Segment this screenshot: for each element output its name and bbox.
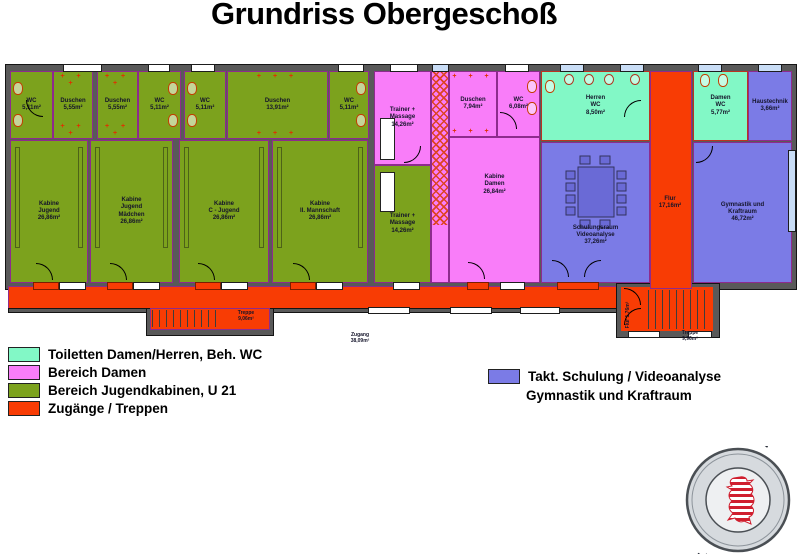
toilet-icon <box>527 80 537 93</box>
room-label: Gymnastik undKraftraum46,72m² <box>721 202 764 224</box>
room-label-treppe-links: Treppe9,06m² <box>226 310 266 322</box>
legend-label: Zugänge / Treppen <box>48 401 168 416</box>
toilet-icon <box>168 114 178 127</box>
urinal-icon <box>630 74 640 85</box>
urinal-icon <box>604 74 614 85</box>
legend-label: Takt. Schulung / Videoanalyse <box>528 369 721 384</box>
ksv-hessen-kassel-logo: KSV HESSEN KASSEL <box>684 446 792 554</box>
legend-label: Bereich Damen <box>48 365 146 380</box>
toilet-icon <box>700 74 710 87</box>
room-label-flur: Flur17,16m² <box>652 196 688 210</box>
page-title: Grundriss Obergeschoß <box>211 0 557 32</box>
window <box>63 64 102 72</box>
toilet-icon <box>187 114 197 127</box>
room-label-zugang: Zugang38,09m² <box>330 332 390 344</box>
window <box>390 64 418 72</box>
door-opening <box>107 282 133 290</box>
toilet-icon <box>187 82 197 95</box>
room-label: KabineC - Jugend26,86m² <box>209 201 240 223</box>
room-damen-wc: DamenWC5,77m² <box>693 71 748 141</box>
room-label: Trainer +Massage14,26m² <box>390 107 415 129</box>
room-label: WC5,11m² <box>196 98 215 112</box>
room-haustechnik: Haustechnik3,66m² <box>748 71 792 141</box>
toilet-icon <box>527 102 537 115</box>
room-label: Duschen5,55m² <box>60 98 85 112</box>
room-label: Duschen7,94m² <box>460 97 485 111</box>
toilet-icon <box>13 82 23 95</box>
room-kabine-jugend-maedchen: KabineJugendMädchen26,86m² <box>90 140 173 283</box>
window <box>133 282 160 290</box>
room-wc-4: WC5,11m² <box>329 71 369 139</box>
room-kabine-jugend: KabineJugend26,86m² <box>10 140 88 283</box>
room-duschen-3: Duschen13,91m² <box>227 71 328 139</box>
toilet-icon <box>545 80 555 93</box>
room-label: WC6,08m² <box>509 97 528 111</box>
window <box>628 331 660 338</box>
window <box>520 307 560 314</box>
window <box>505 64 529 72</box>
window <box>788 150 796 232</box>
window <box>432 64 449 72</box>
massage-table-icon <box>380 172 395 212</box>
logo-text-right: KASSEL <box>689 546 712 554</box>
legend-swatch-pink <box>8 365 40 380</box>
corridor-flur <box>650 71 692 289</box>
window <box>698 64 722 72</box>
room-duschen-damen: Duschen7,94m² <box>449 71 497 137</box>
room-label: KabineII. Mannschaft26,86m² <box>300 201 340 223</box>
legend-item-gymnastik: Gymnastik und Kraftraum <box>526 388 692 403</box>
room-label-treppe-rechts: Treppe9,96m² <box>668 330 712 342</box>
logo-text-left: HESSEN <box>759 446 781 450</box>
window <box>500 282 525 290</box>
window <box>191 64 215 72</box>
room-trainer-massage-jugend: Trainer +Massage14,26m² <box>374 165 431 283</box>
door-opening <box>290 282 316 290</box>
room-label: Haustechnik3,66m² <box>752 99 788 113</box>
window <box>221 282 248 290</box>
shaft-hatching-icon <box>432 72 448 225</box>
window <box>450 307 492 314</box>
legend-label: Bereich Jugendkabinen, U 21 <box>48 383 236 398</box>
window <box>620 64 644 72</box>
room-label: KabineDamen26,84m² <box>483 174 505 196</box>
legend-label: Toiletten Damen/Herren, Beh. WC <box>48 347 262 362</box>
room-wc-3: WC5,11m² <box>184 71 226 139</box>
room-duschen-2: Duschen5,55m² <box>97 71 138 139</box>
room-wc-2: WC5,11m² <box>138 71 181 139</box>
urinal-icon <box>564 74 574 85</box>
conference-table-icon <box>556 145 636 231</box>
window <box>338 64 364 72</box>
door-opening <box>33 282 59 290</box>
window <box>59 282 86 290</box>
window <box>316 282 343 290</box>
legend-swatch-blue <box>488 369 520 384</box>
room-trainer-massage-damen: Trainer +Massage14,26m² <box>374 71 431 165</box>
legend-item-schulung: Takt. Schulung / Videoanalyse <box>488 369 721 384</box>
legend-item-damen: Bereich Damen <box>8 365 146 380</box>
room-label: DamenWC5,77m² <box>710 95 730 117</box>
window <box>368 307 410 314</box>
stairs-right-icon <box>648 290 710 329</box>
legend-label: Gymnastik und Kraftraum <box>526 388 692 403</box>
window <box>560 64 584 72</box>
floorplan-page: Grundriss Obergeschoß Treppe9,06m² Flur … <box>0 0 800 556</box>
toilet-icon <box>356 114 366 127</box>
stairs-left-icon <box>152 310 222 327</box>
legend-item-jugend: Bereich Jugendkabinen, U 21 <box>8 383 236 398</box>
room-gymnastik-kraftraum: Gymnastik undKraftraum46,72m² <box>693 142 792 283</box>
toilet-icon <box>356 82 366 95</box>
room-label: WC5,11m² <box>340 98 359 112</box>
room-label: Duschen13,91m² <box>265 98 290 112</box>
room-label: SchulungsraumVideoanalyse37,26m² <box>573 225 618 247</box>
legend-swatch-teal <box>8 347 40 362</box>
legend-swatch-orange <box>8 401 40 416</box>
room-label: KabineJugend26,86m² <box>38 201 60 223</box>
room-kabine-2-mannschaft: KabineII. Mannschaft26,86m² <box>272 140 368 283</box>
urinal-icon <box>584 74 594 85</box>
room-label: KabineJugendMädchen26,86m² <box>118 197 144 226</box>
room-label: WC5,11m² <box>150 98 169 112</box>
toilet-icon <box>13 114 23 127</box>
legend-swatch-green <box>8 383 40 398</box>
room-kabine-c-jugend: KabineC - Jugend26,86m² <box>179 140 269 283</box>
room-label: HerrenWC8,50m² <box>586 95 605 117</box>
door-opening <box>195 282 221 290</box>
legend-item-toiletten: Toiletten Damen/Herren, Beh. WC <box>8 347 262 362</box>
toilet-icon <box>168 82 178 95</box>
room-duschen-1: Duschen5,55m² <box>53 71 93 139</box>
window <box>758 64 782 72</box>
window <box>393 282 420 290</box>
door-opening <box>467 282 489 290</box>
door-opening <box>557 282 599 290</box>
window <box>148 64 170 72</box>
room-label: Duschen5,55m² <box>105 98 130 112</box>
room-kabine-damen: KabineDamen26,84m² <box>449 137 540 283</box>
legend-item-zugaenge: Zugänge / Treppen <box>8 401 168 416</box>
room-label: Trainer +Massage14,26m² <box>390 213 415 235</box>
stair-shaft <box>431 71 449 283</box>
toilet-icon <box>718 74 728 87</box>
